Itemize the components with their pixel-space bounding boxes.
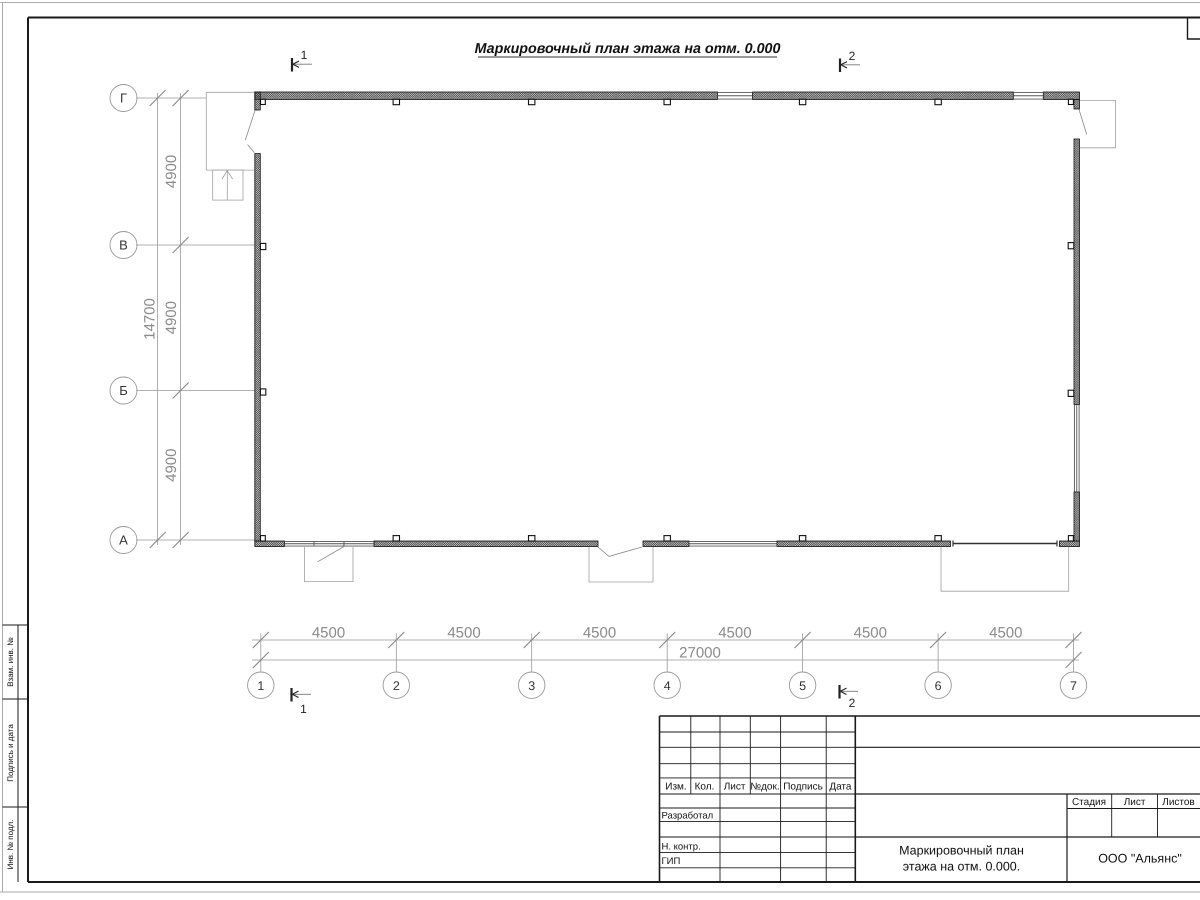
- svg-text:Н. контр.: Н. контр.: [662, 842, 701, 853]
- svg-text:3: 3: [528, 679, 535, 693]
- svg-text:№док.: №док.: [750, 782, 779, 793]
- svg-text:4: 4: [664, 679, 671, 693]
- svg-text:Взам. инв. №: Взам. инв. №: [6, 637, 15, 687]
- svg-text:27000: 27000: [679, 645, 721, 662]
- svg-text:7: 7: [1070, 679, 1077, 693]
- svg-text:Лист: Лист: [724, 782, 746, 793]
- svg-text:Кол.: Кол.: [695, 782, 715, 793]
- svg-text:4500: 4500: [447, 625, 480, 642]
- svg-text:4900: 4900: [163, 301, 180, 334]
- svg-text:ООО "Альянс": ООО "Альянс": [1098, 852, 1182, 866]
- svg-text:4500: 4500: [989, 625, 1022, 642]
- svg-text:6: 6: [935, 679, 942, 693]
- svg-text:4900: 4900: [163, 155, 180, 188]
- svg-text:4500: 4500: [718, 625, 751, 642]
- svg-text:Г: Г: [120, 91, 127, 106]
- svg-text:2: 2: [393, 679, 400, 693]
- svg-text:Подпись: Подпись: [783, 782, 823, 793]
- svg-text:4900: 4900: [163, 449, 180, 482]
- svg-text:1: 1: [257, 679, 264, 693]
- svg-text:Стадия: Стадия: [1072, 797, 1106, 808]
- svg-text:Маркировочный план этажа на от: Маркировочный план этажа на отм. 0.000: [475, 41, 781, 57]
- svg-text:2: 2: [849, 696, 856, 710]
- svg-text:Дата: Дата: [829, 782, 852, 793]
- svg-text:Б: Б: [119, 383, 128, 398]
- svg-text:Листов: Листов: [1162, 797, 1195, 808]
- svg-text:2: 2: [849, 49, 856, 63]
- svg-text:В: В: [119, 238, 128, 253]
- svg-text:4500: 4500: [312, 625, 345, 642]
- svg-text:Изм.: Изм.: [665, 782, 686, 793]
- svg-text:Инв. № подл.: Инв. № подл.: [6, 820, 15, 870]
- svg-text:Разработал: Разработал: [662, 811, 714, 822]
- svg-text:Маркировочный план: Маркировочный план: [899, 844, 1024, 858]
- svg-text:14700: 14700: [141, 298, 158, 340]
- svg-text:4500: 4500: [583, 625, 616, 642]
- svg-text:Лист: Лист: [1124, 797, 1146, 808]
- svg-text:5: 5: [799, 679, 806, 693]
- svg-text:Подпись и дата: Подпись и дата: [6, 724, 15, 782]
- svg-text:ГИП: ГИП: [662, 856, 681, 867]
- svg-text:1: 1: [300, 702, 307, 716]
- svg-text:А: А: [119, 533, 128, 548]
- svg-text:4500: 4500: [854, 625, 887, 642]
- svg-text:этажа на отм. 0.000.: этажа на отм. 0.000.: [903, 860, 1020, 874]
- svg-text:1: 1: [301, 48, 308, 62]
